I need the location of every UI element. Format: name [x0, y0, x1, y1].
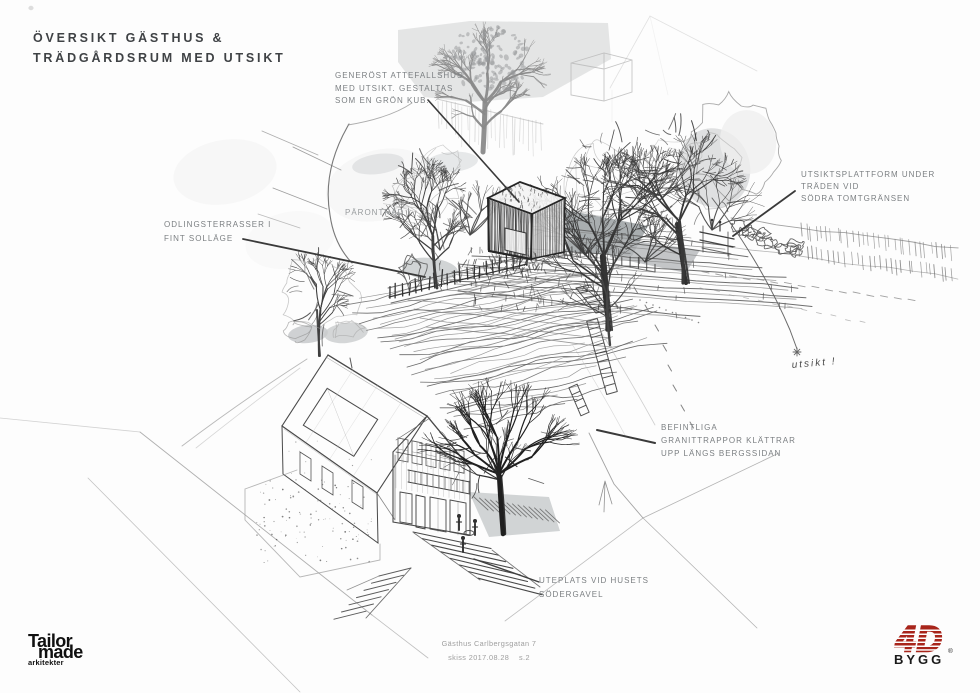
svg-text:UPP LÄNGS BERGSSIDAN: UPP LÄNGS BERGSSIDAN [661, 449, 781, 458]
svg-text:PÄRONTRÄD I: PÄRONTRÄD I [345, 208, 411, 217]
svg-text:UTSIKTSPLATTFORM UNDER: UTSIKTSPLATTFORM UNDER [801, 170, 935, 179]
svg-text:GRANITTRAPPOR KLÄTTRAR: GRANITTRAPPOR KLÄTTRAR [661, 436, 796, 445]
svg-text:SÖDRA TOMTGRÄNSEN: SÖDRA TOMTGRÄNSEN [801, 194, 910, 203]
svg-text:Gästhus Carlbergsgatan 7: Gästhus Carlbergsgatan 7 [442, 639, 537, 648]
svg-text:MED UTSIKT. GESTALTAS: MED UTSIKT. GESTALTAS [335, 84, 453, 93]
svg-text:GENERÖST ATTEFALLSHUS: GENERÖST ATTEFALLSHUS [335, 71, 463, 80]
svg-text:FINT SOLLÄGE: FINT SOLLÄGE [164, 234, 233, 243]
svg-text:SOM EN GRÖN KUB.: SOM EN GRÖN KUB. [335, 96, 430, 105]
svg-text:UTEPLATS VID HUSETS: UTEPLATS VID HUSETS [539, 576, 649, 585]
svg-text:arkitekter: arkitekter [28, 658, 64, 667]
svg-text:ODLINGSTERRASSER I: ODLINGSTERRASSER I [164, 220, 271, 229]
svg-text:skiss 2017.08.28 s.2: skiss 2017.08.28 s.2 [448, 653, 530, 662]
svg-text:BEFINTLIGA: BEFINTLIGA [661, 423, 718, 432]
svg-text:TRÄDGÅRDSRUM MED UTSIKT: TRÄDGÅRDSRUM MED UTSIKT [33, 50, 286, 65]
svg-text:®: ® [948, 647, 953, 655]
svg-text:SÖDERGAVEL: SÖDERGAVEL [539, 590, 604, 599]
svg-text:BYGG: BYGG [894, 652, 944, 667]
svg-text:TRÄDEN VID: TRÄDEN VID [801, 182, 859, 191]
svg-text:ÖVERSIKT GÄSTHUS &: ÖVERSIKT GÄSTHUS & [33, 30, 224, 45]
